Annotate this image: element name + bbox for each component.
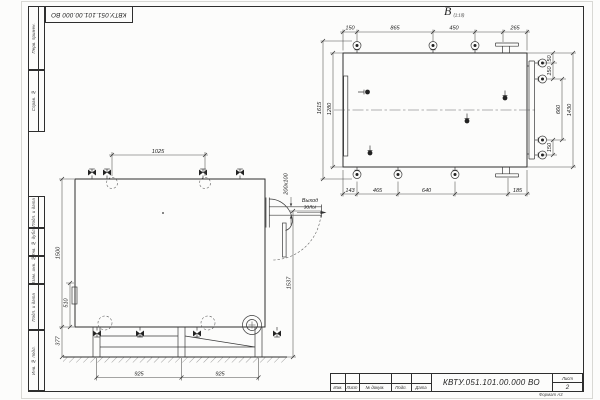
- dimension-label: 150: [547, 65, 553, 75]
- dimension-label: 50: [547, 55, 553, 62]
- dimension-label: 1025: [152, 149, 165, 155]
- dimension-label: 465: [373, 188, 383, 194]
- outlet-label-line2: золы: [303, 205, 316, 211]
- view-label: В: [444, 4, 452, 18]
- dimension-label: 1430: [567, 103, 573, 116]
- dimension-label: 200х100: [284, 172, 290, 195]
- top-view: В (1:10): [317, 4, 576, 197]
- dimension-label: 450: [449, 25, 459, 31]
- flange-stub-bottom: [496, 167, 519, 177]
- sheet-label: Лист: [552, 376, 583, 381]
- support-frame: [63, 327, 287, 363]
- ash-outlet-annotation: Выход золы: [297, 198, 327, 214]
- title-block: Изм. Лист № докум. Подп. Дата КВТУ.051.1…: [330, 373, 583, 392]
- burner-flange: [243, 316, 262, 335]
- flow-arrow-icon: [321, 211, 327, 214]
- title-col-list: Лист: [345, 385, 359, 390]
- dimension-label: 925: [215, 371, 225, 377]
- drawing-sheet: Перв. примен. Справ. № Подп. и дата Инв.…: [0, 0, 600, 400]
- title-col-podp: Подп.: [391, 385, 411, 390]
- dimension-label: 510: [64, 297, 70, 307]
- door-section-hatch: [344, 76, 348, 156]
- boiler-body-outline: [72, 179, 265, 327]
- dimension-label: 185: [513, 188, 523, 194]
- valve-icons-plan-top: [353, 42, 519, 54]
- dimension-label: 150: [345, 25, 355, 31]
- dimension-label: 143: [345, 188, 355, 194]
- dimension-label: 1280: [327, 102, 333, 115]
- dimension-label: 150: [547, 142, 553, 152]
- flange-stub-top: [496, 43, 519, 53]
- view-scale-note: (1:10): [454, 13, 466, 18]
- sheet-number: 2: [552, 384, 583, 391]
- dimension-label: 265: [509, 25, 520, 31]
- valve-icons-plan-bottom: [353, 167, 519, 179]
- dimension-label: 377: [56, 335, 62, 345]
- dimension-label: 925: [134, 371, 144, 377]
- interior-fittings: [358, 90, 507, 156]
- title-col-data: Дата: [411, 385, 431, 390]
- format-note: Формат А3: [539, 392, 563, 397]
- title-col-izm: Изм.: [331, 385, 345, 390]
- dimension-label: 660: [556, 104, 562, 114]
- dimension-label: 1500: [56, 246, 62, 259]
- title-col-dokum: № докум.: [359, 385, 391, 390]
- document-number: КВТУ.051.101.00.000 ВО: [431, 374, 552, 391]
- boiler-body-plan: [334, 53, 536, 167]
- front-view: Выход золы 1025 1500 510 377 925 925: [56, 149, 327, 381]
- dimension-label: 640: [422, 188, 432, 194]
- front-view-dimensions: 1025 1500 510 377 925 925 1537 200х100: [56, 149, 323, 381]
- right-channel-and-valves: [527, 59, 547, 159]
- dimension-label: 1615: [317, 101, 323, 114]
- dimension-label: 1537: [287, 276, 293, 289]
- outlet-label-line1: Выход: [302, 198, 318, 204]
- drawing-area: Выход золы 1025 1500 510 377 925 925: [0, 0, 600, 400]
- dimension-label: 865: [390, 25, 400, 31]
